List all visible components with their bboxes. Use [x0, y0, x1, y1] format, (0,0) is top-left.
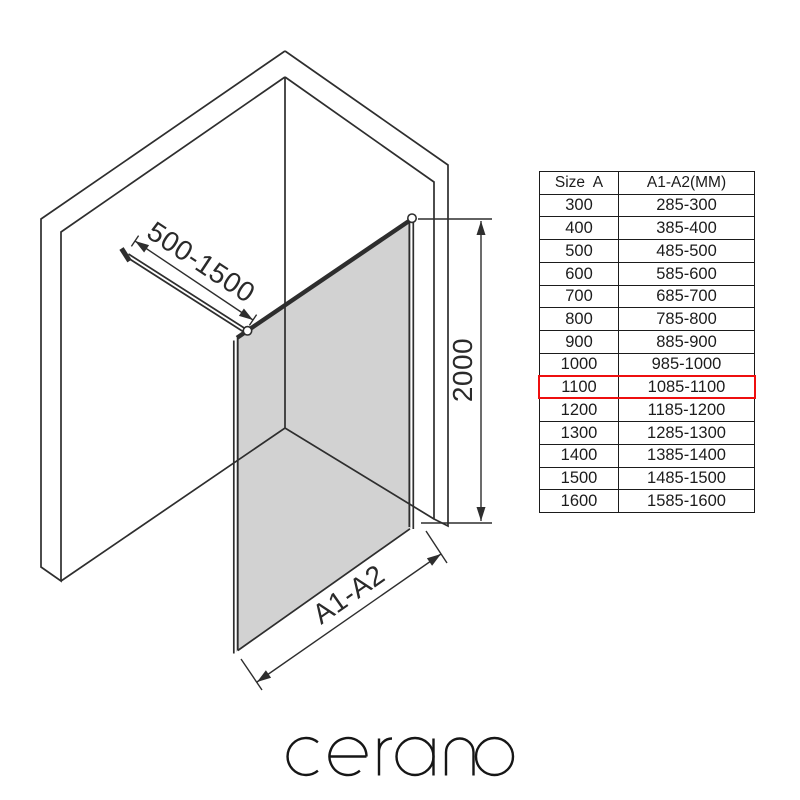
- range-cell: 1585-1600: [619, 490, 754, 512]
- size-cell: 1600: [540, 490, 619, 512]
- cerano-logo: [288, 738, 513, 776]
- letter-n: [446, 738, 474, 775]
- size-cell: 1300: [540, 422, 619, 444]
- range-cell: 385-400: [619, 217, 754, 239]
- letter-c: [288, 738, 318, 775]
- table-row: 1500 1485-1500: [540, 468, 754, 491]
- size-cell: 800: [540, 308, 619, 330]
- table-row: 700 685-700: [540, 286, 754, 309]
- dim-label-bar-range: 500-1500: [142, 215, 261, 308]
- range-cell: 585-600: [619, 263, 754, 285]
- dim-label-height: 2000: [447, 338, 478, 402]
- size-cell: 900: [540, 331, 619, 353]
- size-cell: 1500: [540, 468, 619, 490]
- table-row: 300 285-300: [540, 195, 754, 218]
- letter-e: [330, 738, 367, 775]
- range-cell: 485-500: [619, 240, 754, 262]
- size-cell: 600: [540, 263, 619, 285]
- table-header-row: Size A A1-A2(MM): [540, 172, 754, 195]
- range-cell: 285-300: [619, 195, 754, 217]
- letter-o: [476, 738, 513, 775]
- size-table: Size A A1-A2(MM) 300 285-300 400 385-400…: [539, 171, 755, 513]
- size-cell: 1000: [540, 354, 619, 376]
- range-cell: 1085-1100: [619, 377, 754, 399]
- letter-r: [379, 739, 392, 776]
- table-row: 400 385-400: [540, 217, 754, 240]
- size-cell: 1200: [540, 399, 619, 421]
- range-cell: 1285-1300: [619, 422, 754, 444]
- table-row: 1200 1185-1200: [540, 399, 754, 422]
- size-cell: 1100: [540, 377, 619, 399]
- range-cell: 1485-1500: [619, 468, 754, 490]
- table-row: 900 885-900: [540, 331, 754, 354]
- range-cell: 1385-1400: [619, 445, 754, 467]
- product-diagram-page: 500-1500 2000 A1-A2 cerano Size A A1-A2(…: [0, 0, 800, 800]
- wall-mount-plate: [122, 249, 130, 262]
- range-cell: 785-800: [619, 308, 754, 330]
- size-cell: 700: [540, 286, 619, 308]
- table-row: 600 585-600: [540, 263, 754, 286]
- table-row: 1300 1285-1300: [540, 422, 754, 445]
- range-cell: 685-700: [619, 286, 754, 308]
- col-header-size: Size A: [540, 172, 619, 194]
- size-cell: 1400: [540, 445, 619, 467]
- range-cell: 985-1000: [619, 354, 754, 376]
- size-cell: 300: [540, 195, 619, 217]
- table-row: 1400 1385-1400: [540, 445, 754, 468]
- table-row-highlighted: 1100 1085-1100: [540, 377, 754, 400]
- table-row: 1600 1585-1600: [540, 490, 754, 512]
- range-cell: 1185-1200: [619, 399, 754, 421]
- col-header-range: A1-A2(MM): [619, 172, 754, 194]
- table-row: 500 485-500: [540, 240, 754, 263]
- letter-a: [397, 738, 434, 776]
- range-cell: 885-900: [619, 331, 754, 353]
- size-cell: 500: [540, 240, 619, 262]
- table-row: 800 785-800: [540, 308, 754, 331]
- table-row: 1000 985-1000: [540, 354, 754, 377]
- size-cell: 400: [540, 217, 619, 239]
